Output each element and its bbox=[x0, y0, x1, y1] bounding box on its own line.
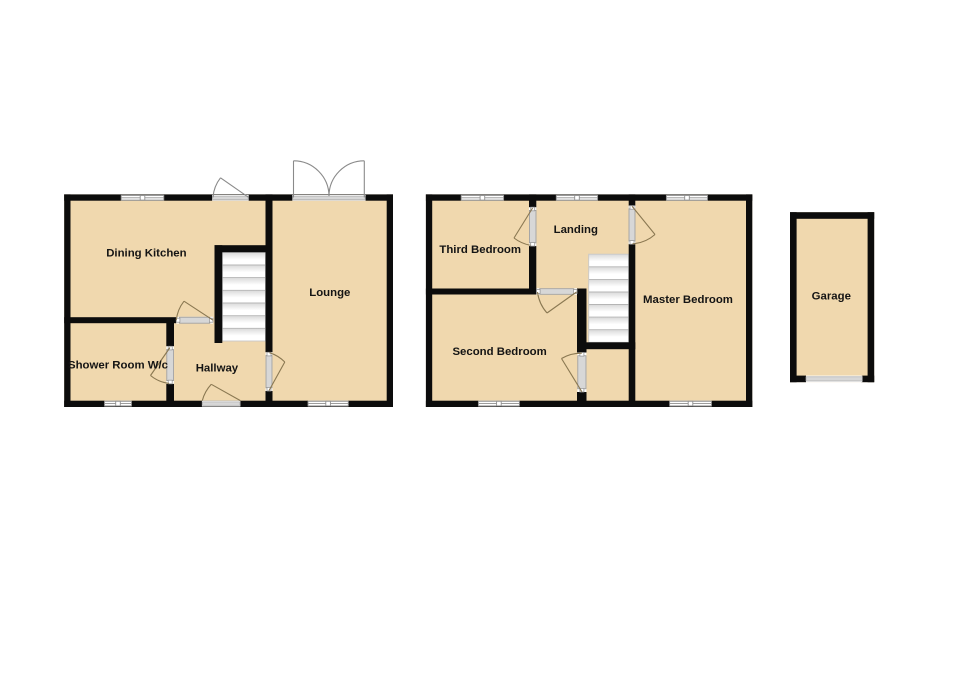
svg-text:Landing: Landing bbox=[554, 224, 598, 236]
svg-text:Master Bedroom: Master Bedroom bbox=[643, 294, 733, 306]
svg-text:Shower Room W/c: Shower Room W/c bbox=[68, 360, 168, 372]
svg-text:Lounge: Lounge bbox=[309, 287, 350, 299]
svg-text:Dining Kitchen: Dining Kitchen bbox=[106, 248, 186, 260]
svg-text:Hallway: Hallway bbox=[196, 363, 239, 375]
svg-text:Third Bedroom: Third Bedroom bbox=[439, 244, 521, 256]
svg-text:Second Bedroom: Second Bedroom bbox=[452, 346, 546, 358]
svg-text:Garage: Garage bbox=[812, 290, 851, 302]
